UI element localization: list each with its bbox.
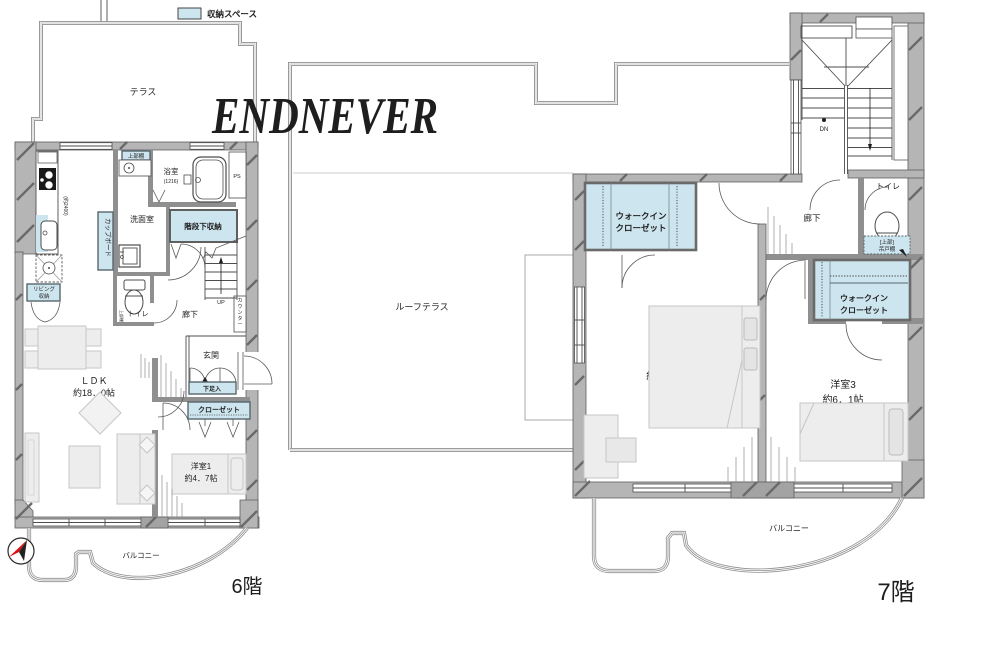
- svg-text:収納スペース: 収納スペース: [207, 9, 257, 19]
- svg-text:タ: タ: [237, 315, 242, 322]
- svg-text:クローゼット: クローゼット: [198, 405, 240, 414]
- svg-text:廊下: 廊下: [803, 213, 821, 223]
- svg-text:ウォークイン: ウォークイン: [840, 293, 888, 303]
- svg-text:6階: 6階: [231, 575, 262, 598]
- svg-text:バルコニー: バルコニー: [122, 551, 159, 560]
- svg-text:ルーフテラス: ルーフテラス: [395, 302, 448, 312]
- svg-text:約18．0帖: 約18．0帖: [73, 387, 115, 398]
- svg-text:洗面室: 洗面室: [130, 214, 154, 224]
- svg-text:テラス: テラス: [130, 87, 157, 97]
- svg-text:吊戸棚: 吊戸棚: [879, 245, 896, 253]
- svg-text:7階: 7階: [877, 579, 914, 606]
- svg-text:(約2400): (約2400): [62, 196, 69, 216]
- svg-text:ウォークイン: ウォークイン: [615, 211, 667, 221]
- svg-text:UP: UP: [217, 300, 225, 306]
- svg-text:バルコニー: バルコニー: [769, 524, 809, 533]
- svg-text:クローゼット: クローゼット: [615, 223, 666, 233]
- svg-text:DN: DN: [820, 127, 829, 133]
- svg-text:トイレ: トイレ: [128, 311, 149, 318]
- svg-text:洋室1: 洋室1: [191, 461, 212, 471]
- svg-text:ＬＤＫ: ＬＤＫ: [80, 376, 107, 386]
- svg-text:上部棚: 上部棚: [128, 152, 145, 160]
- svg-text:玄関: 玄関: [203, 350, 219, 360]
- svg-text:廊下: 廊下: [182, 309, 198, 319]
- svg-text:収納: 収納: [38, 292, 50, 300]
- svg-text:ウ: ウ: [237, 303, 242, 310]
- svg-text:上部棚: 上部棚: [119, 310, 125, 322]
- svg-text:階段下収納: 階段下収納: [184, 221, 222, 231]
- svg-text:クローゼット: クローゼット: [840, 305, 888, 315]
- svg-text:リビング: リビング: [33, 285, 56, 293]
- svg-text:ー: ー: [237, 322, 242, 328]
- svg-text:洋室3: 洋室3: [830, 378, 856, 391]
- svg-text:下足入: 下足入: [203, 385, 221, 393]
- svg-text:PS: PS: [233, 174, 241, 180]
- svg-text:(1216): (1216): [164, 179, 179, 185]
- svg-text:約4．7帖: 約4．7帖: [185, 473, 218, 483]
- svg-text:カップボード: カップボード: [104, 218, 112, 257]
- svg-text:トイレ: トイレ: [876, 182, 900, 191]
- svg-text:浴室: 浴室: [164, 166, 179, 176]
- svg-text:[上部]: [上部]: [880, 238, 895, 246]
- svg-text:ENDNEVER: ENDNEVER: [211, 88, 438, 145]
